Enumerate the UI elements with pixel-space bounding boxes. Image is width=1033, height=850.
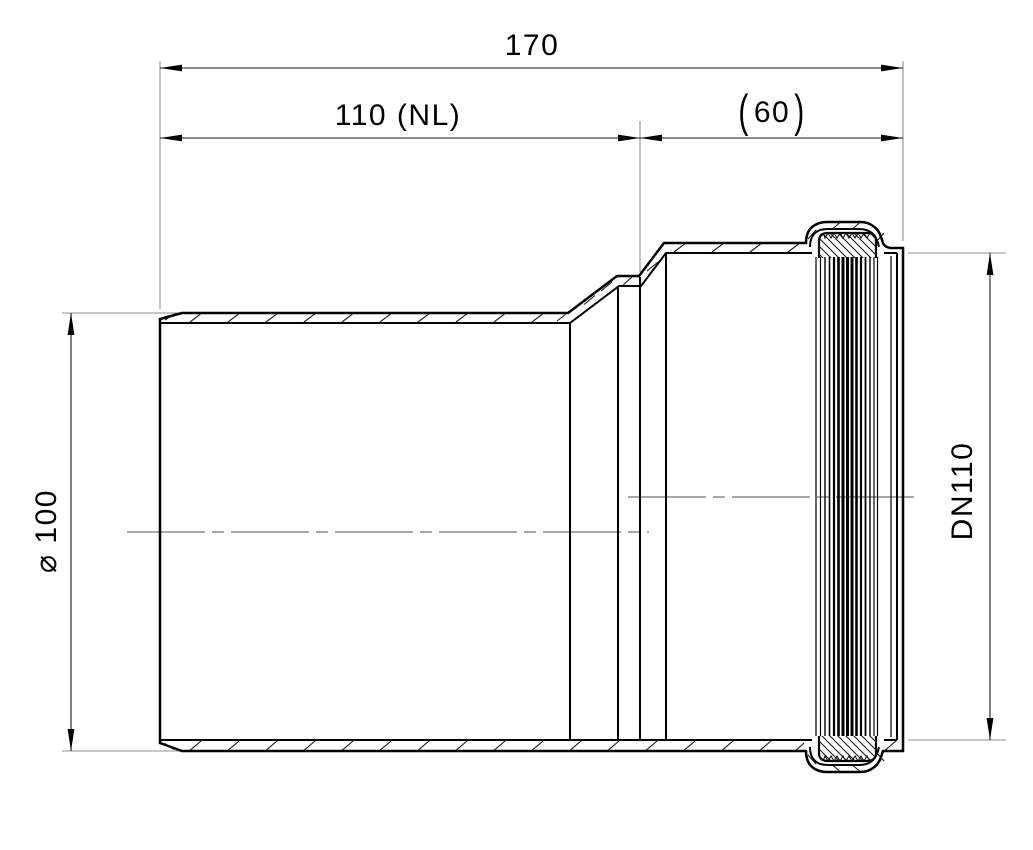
socket-depth-close-paren: ) bbox=[794, 91, 806, 136]
dimension-label-spigot-diameter: ⌀ 100 bbox=[32, 489, 62, 573]
technical-drawing-page: 170 110 (NL) (60) ⌀ 100 DN110 bbox=[0, 0, 1033, 850]
extension-lines bbox=[62, 61, 1006, 751]
pipe-adapter-section-drawing bbox=[0, 0, 1033, 850]
dimension-label-pipe-length: 110 (NL) bbox=[335, 101, 462, 131]
socket-depth-value: 60 bbox=[754, 96, 790, 129]
centerlines bbox=[127, 497, 919, 532]
dimension-label-total-length: 170 bbox=[505, 31, 560, 61]
dimension-label-socket-depth: (60) bbox=[734, 98, 809, 128]
dimension-lines bbox=[68, 65, 994, 751]
socket-depth-open-paren: ( bbox=[738, 91, 750, 136]
dimension-label-socket-bore: DN110 bbox=[948, 442, 978, 541]
